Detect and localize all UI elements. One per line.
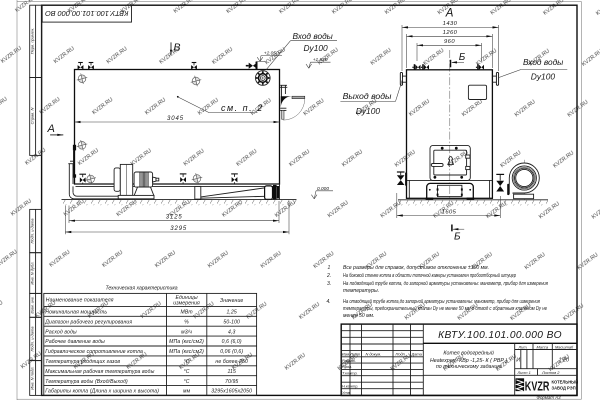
svg-text:50-100: 50-100	[223, 319, 240, 325]
svg-text:МВт: МВт	[180, 310, 192, 316]
svg-text:Вход воды: Вход воды	[293, 31, 333, 41]
svg-text:см. п. 2: см. п. 2	[221, 103, 264, 113]
svg-text:температуры, предохранительный: температуры, предохранительный клапан Dy…	[343, 305, 547, 312]
svg-text:1260: 1260	[443, 30, 458, 36]
svg-text:ЗАВОД РЭП: ЗАВОД РЭП	[552, 385, 576, 390]
svg-text:А: А	[47, 123, 55, 135]
svg-text:4,3: 4,3	[228, 329, 235, 335]
svg-text:Подп.: Подп.	[396, 351, 406, 356]
svg-text:Температура уходящих газов: Температура уходящих газов	[45, 359, 120, 365]
svg-text:Разраб.: Разраб.	[342, 358, 356, 363]
svg-text:Наименование показателя: Наименование показателя	[46, 298, 114, 304]
svg-text:Значение: Значение	[220, 298, 243, 304]
svg-text:На отводящей трубе котла,до за: На отводящей трубе котла,до запорной арм…	[343, 298, 540, 305]
svg-text:°С: °С	[184, 369, 190, 375]
svg-text:Dy100: Dy100	[356, 106, 381, 116]
svg-text:Выход воды: Выход воды	[343, 91, 392, 101]
svg-text:МПа (кгс/см2): МПа (кгс/см2)	[169, 339, 204, 345]
svg-text:МПа (кгс/см2): МПа (кгс/см2)	[169, 349, 204, 355]
svg-text:3295: 3295	[170, 226, 187, 232]
svg-text:Пров.: Пров.	[342, 364, 352, 369]
svg-text:0,06 (0,6): 0,06 (0,6)	[220, 349, 243, 355]
svg-text:KVZR: KVZR	[525, 379, 550, 394]
svg-text:Котел водогрейный: Котел водогрейный	[443, 349, 493, 356]
svg-text:А: А	[445, 8, 454, 20]
svg-text:0,6 (6,0): 0,6 (6,0)	[222, 339, 242, 345]
svg-text:%: %	[184, 319, 189, 325]
svg-text:Изм.Лист: Изм.Лист	[342, 351, 361, 356]
svg-text:2.: 2.	[326, 273, 331, 279]
svg-text:И: И	[516, 358, 520, 364]
svg-text:3125: 3125	[166, 215, 183, 221]
svg-text:3045: 3045	[167, 116, 184, 122]
svg-text:1605: 1605	[442, 210, 457, 216]
svg-text:Рабочее давление воды: Рабочее давление воды	[45, 339, 105, 345]
svg-text:Температура воды (Вход/Выход): Температура воды (Вход/Выход)	[45, 379, 128, 385]
svg-text:по техническому заданию: по техническому заданию	[436, 364, 501, 370]
svg-text:Инв. N дубл.: Инв. N дубл.	[30, 261, 35, 284]
svg-text:Heatexpert- КВр -1,25- К ( РВР: Heatexpert- КВр -1,25- К ( РВР )	[430, 358, 507, 364]
svg-text:Формат А3: Формат А3	[537, 395, 562, 400]
svg-text:Диапазон рабочего регулировани: Диапазон рабочего регулирования	[44, 319, 132, 325]
svg-text:На боковой стенке котла в обла: На боковой стенке котла в области топочн…	[343, 272, 516, 279]
svg-text:КВТУ.100.101.00.000 ВО: КВТУ.100.101.00.000 ВО	[45, 9, 129, 18]
svg-text:Лист 1: Лист 1	[517, 370, 531, 375]
svg-text:N докум.: N докум.	[366, 351, 382, 356]
svg-text:Масса: Масса	[537, 344, 549, 349]
svg-text:1430: 1430	[443, 21, 458, 27]
svg-text:температуры.: температуры.	[343, 288, 379, 294]
svg-text:Инв. N подл.: Инв. N подл.	[30, 366, 35, 389]
svg-text:Подп. и дата: Подп. и дата	[30, 218, 35, 244]
svg-text:Все размеры для справок, допус: Все размеры для справок, допустимое откл…	[343, 265, 489, 271]
svg-text:Утв.: Утв.	[342, 390, 351, 395]
svg-text:Масштаб: Масштаб	[555, 344, 574, 349]
svg-text:1:20: 1:20	[559, 358, 570, 364]
svg-text:4.: 4.	[327, 299, 331, 305]
svg-text:Б: Б	[459, 52, 466, 63]
svg-text:Гидравлическое сопротивление к: Гидравлическое сопротивление котла	[45, 349, 143, 355]
svg-text:мм: мм	[183, 389, 191, 395]
svg-text:менее 50 мм.: менее 50 мм.	[343, 313, 374, 319]
svg-text:На подводящей трубе котла, д: На подводящей трубе котла, до запорной а…	[343, 280, 548, 287]
svg-text:Н.контр.: Н.контр.	[342, 383, 358, 388]
svg-text:Т.контр.: Т.контр.	[342, 370, 358, 375]
svg-text:м3/ч: м3/ч	[181, 329, 192, 335]
svg-text:115: 115	[227, 369, 236, 375]
svg-text:Максимальная рабочая температу: Максимальная рабочая температура воды	[45, 369, 154, 375]
svg-text:Dy100: Dy100	[531, 72, 556, 82]
svg-text:Dy100: Dy100	[304, 43, 329, 53]
svg-text:КВТУ.100.101.00.000 ВО: КВТУ.100.101.00.000 ВО	[438, 330, 562, 341]
svg-text:°С: °С	[184, 379, 190, 385]
svg-text:Листов 2: Листов 2	[541, 370, 560, 375]
svg-text:Расход воды: Расход воды	[45, 329, 77, 335]
svg-text:1: 1	[328, 265, 331, 271]
svg-text:КОТЕЛЬНЫЙ: КОТЕЛЬНЫЙ	[552, 379, 579, 384]
svg-text:Справ. N: Справ. N	[30, 108, 35, 125]
svg-text:Лит.: Лит.	[518, 344, 528, 349]
svg-text:В: В	[174, 42, 181, 54]
svg-text:Взам. инв.: Взам. инв.	[31, 296, 35, 313]
svg-text:измерения: измерения	[173, 301, 200, 307]
svg-text:70/95: 70/95	[225, 379, 238, 385]
svg-text:3.: 3.	[327, 281, 331, 287]
svg-text:°С: °С	[184, 359, 190, 365]
svg-text:Габариты котла (Длина х ширина: Габариты котла (Длина х ширина х высота)	[45, 389, 159, 395]
svg-text:1,25: 1,25	[226, 310, 236, 316]
svg-text:Вход воды: Вход воды	[523, 57, 563, 67]
svg-text:960: 960	[444, 39, 455, 45]
svg-text:Б: Б	[454, 232, 461, 243]
svg-text:Техническая характеристика: Техническая характеристика	[105, 285, 177, 291]
svg-text:Подп. и дата: Подп. и дата	[30, 326, 35, 352]
svg-text:3295х1605х2050: 3295х1605х2050	[211, 389, 252, 395]
svg-text:Номинальная мощность: Номинальная мощность	[45, 310, 107, 316]
svg-text:Перв. примен.: Перв. примен.	[30, 28, 35, 55]
svg-text:не более 250: не более 250	[215, 359, 248, 365]
svg-text:Дата: Дата	[411, 351, 423, 356]
